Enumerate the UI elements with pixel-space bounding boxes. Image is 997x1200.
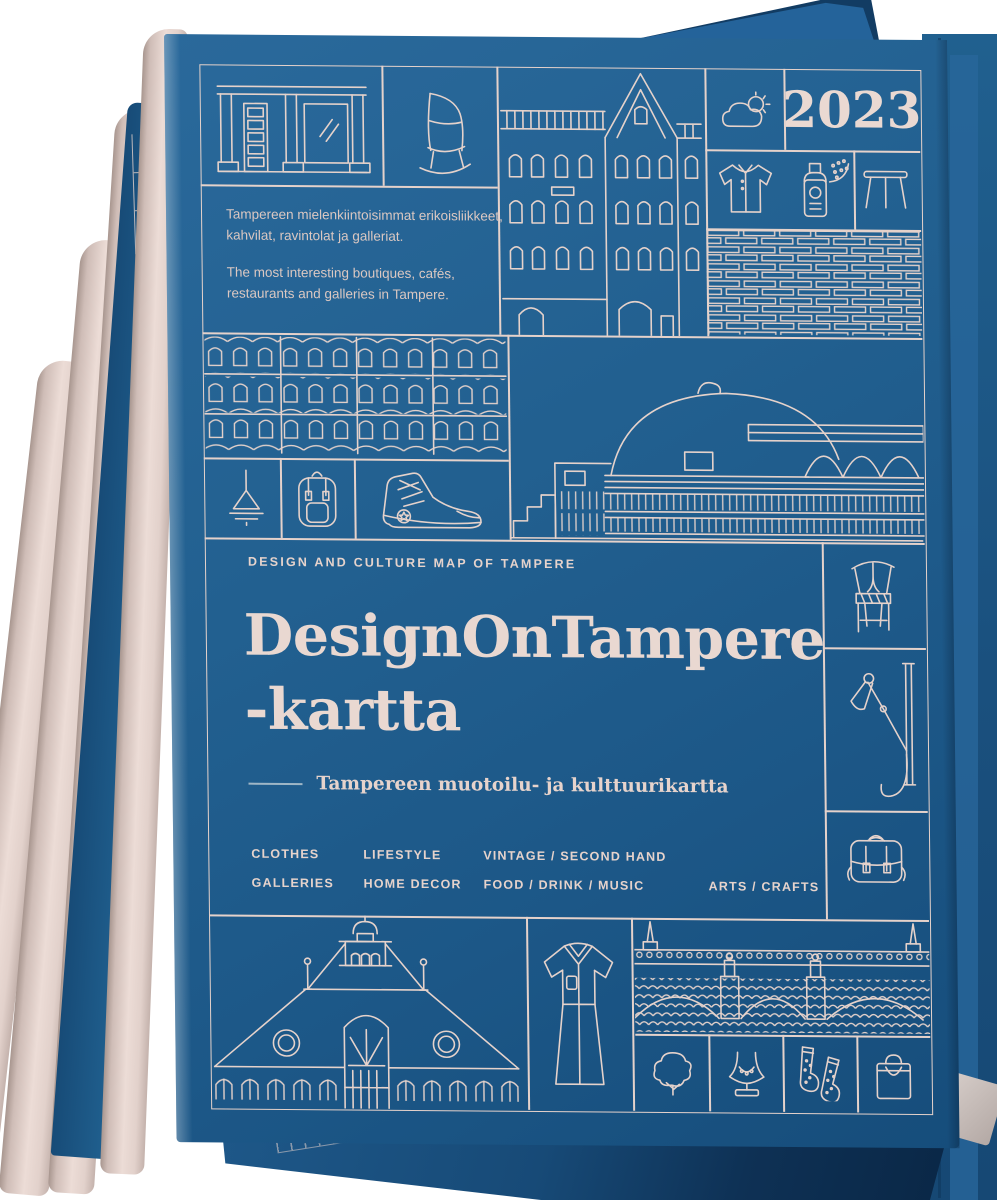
shopping-bag-icon — [873, 1052, 914, 1102]
title-line2: -kartta — [244, 673, 826, 752]
pendant-lamp-icon — [224, 468, 269, 528]
intro-en-line2: restaurants and galleries in Tampere. — [227, 283, 504, 306]
dress-illustration — [536, 933, 622, 1096]
year-label: 2023 — [783, 69, 920, 151]
side-table-icon — [862, 165, 909, 213]
eyebrow-label: DESIGN AND CULTURE MAP OF TAMPERE — [248, 555, 577, 572]
socks-icon — [796, 1045, 843, 1101]
subtitle-dash — [248, 782, 302, 784]
cover-title: DesignOnTampere -kartta — [243, 599, 826, 752]
cloud-sun-icon — [721, 90, 771, 130]
category-clothes: CLOTHES — [251, 847, 319, 862]
factory-building-illustration — [202, 332, 508, 459]
bridge-and-waves-illustration — [634, 920, 930, 1034]
market-hall-illustration — [209, 914, 523, 1109]
brick-wall-pattern — [706, 228, 922, 338]
satchel-bag-icon — [845, 829, 908, 887]
intro-fi-line1: Tampereen mielenkiintoisimmat erikoislii… — [226, 204, 503, 227]
rocking-chair-icon — [405, 88, 484, 177]
intro-paragraphs: Tampereen mielenkiintoisimmat erikoislii… — [226, 204, 504, 306]
intro-en-line1: The most interesting boutiques, cafés, — [227, 262, 504, 285]
brochure-stack-mockup: 2023 Tampereen mielenkiintoisimmat eriko… — [0, 0, 997, 1200]
spray-can-icon — [791, 155, 850, 221]
brochure-cover: 2023 Tampereen mielenkiintoisimmat eriko… — [164, 34, 960, 1148]
title-line1: DesignOnTampere — [243, 599, 825, 678]
cover-subtitle: Tampereen muotoilu- ja kulttuurikartta — [248, 773, 728, 798]
art-nouveau-facade-illustration — [496, 67, 707, 337]
wishbone-chair-icon — [842, 555, 905, 635]
category-galleries: GALLERIES — [252, 876, 335, 891]
category-food-drink-music: FOOD / DRINK / MUSIC — [484, 878, 645, 893]
category-lifestyle: LIFESTYLE — [363, 848, 441, 863]
intro-fi-line2: kahvilat, ravintolat ja galleriat. — [226, 225, 503, 248]
sneaker-icon — [372, 466, 491, 533]
category-arts-crafts: ARTS / CRAFTS — [709, 879, 820, 894]
t-shirt-icon — [716, 160, 775, 216]
wall-lamp-icon — [839, 659, 921, 802]
category-vintage: VINTAGE / SECOND HAND — [483, 849, 666, 864]
arena-dome-illustration — [507, 335, 924, 543]
subtitle-text: Tampereen muotoilu- ja kulttuurikartta — [316, 773, 728, 797]
necklace-stand-icon — [724, 1048, 769, 1098]
backpack-icon — [291, 465, 344, 531]
storefront-illustration — [212, 78, 371, 175]
category-home-decor: HOME DECOR — [364, 877, 462, 892]
tree-icon — [651, 1048, 694, 1098]
